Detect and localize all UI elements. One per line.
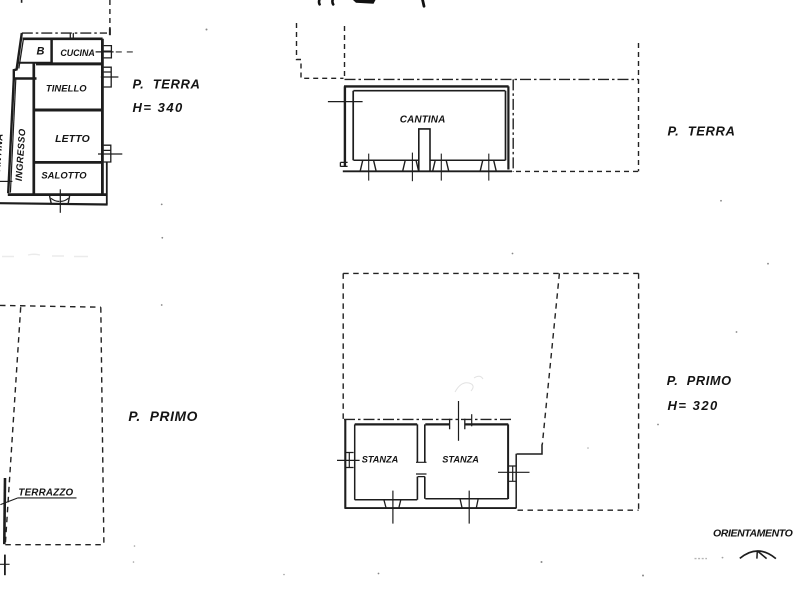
svg-text:STANZA: STANZA <box>362 454 399 464</box>
svg-text:CANTINA: CANTINA <box>400 114 446 125</box>
svg-text:TERRAZZO: TERRAZZO <box>18 488 73 499</box>
svg-text:P. PRIMO: P. PRIMO <box>667 373 732 388</box>
svg-text:STANZA: STANZA <box>442 454 479 464</box>
svg-text:H= 320: H= 320 <box>668 398 719 413</box>
svg-text:P. TERRA: P. TERRA <box>668 123 736 138</box>
svg-text:P. PRIMO: P. PRIMO <box>128 409 198 424</box>
svg-text:SALOTTO: SALOTTO <box>41 170 87 181</box>
svg-text:ORIENTAMENTO: ORIENTAMENTO <box>713 528 793 540</box>
svg-text:P. TERRA: P. TERRA <box>133 77 201 92</box>
svg-text:LETTO: LETTO <box>55 134 90 145</box>
svg-text:H= 340: H= 340 <box>133 100 184 115</box>
svg-text:B: B <box>37 46 45 58</box>
svg-text:TINELLO: TINELLO <box>46 83 87 94</box>
svg-text:CUCINA: CUCINA <box>60 48 95 58</box>
